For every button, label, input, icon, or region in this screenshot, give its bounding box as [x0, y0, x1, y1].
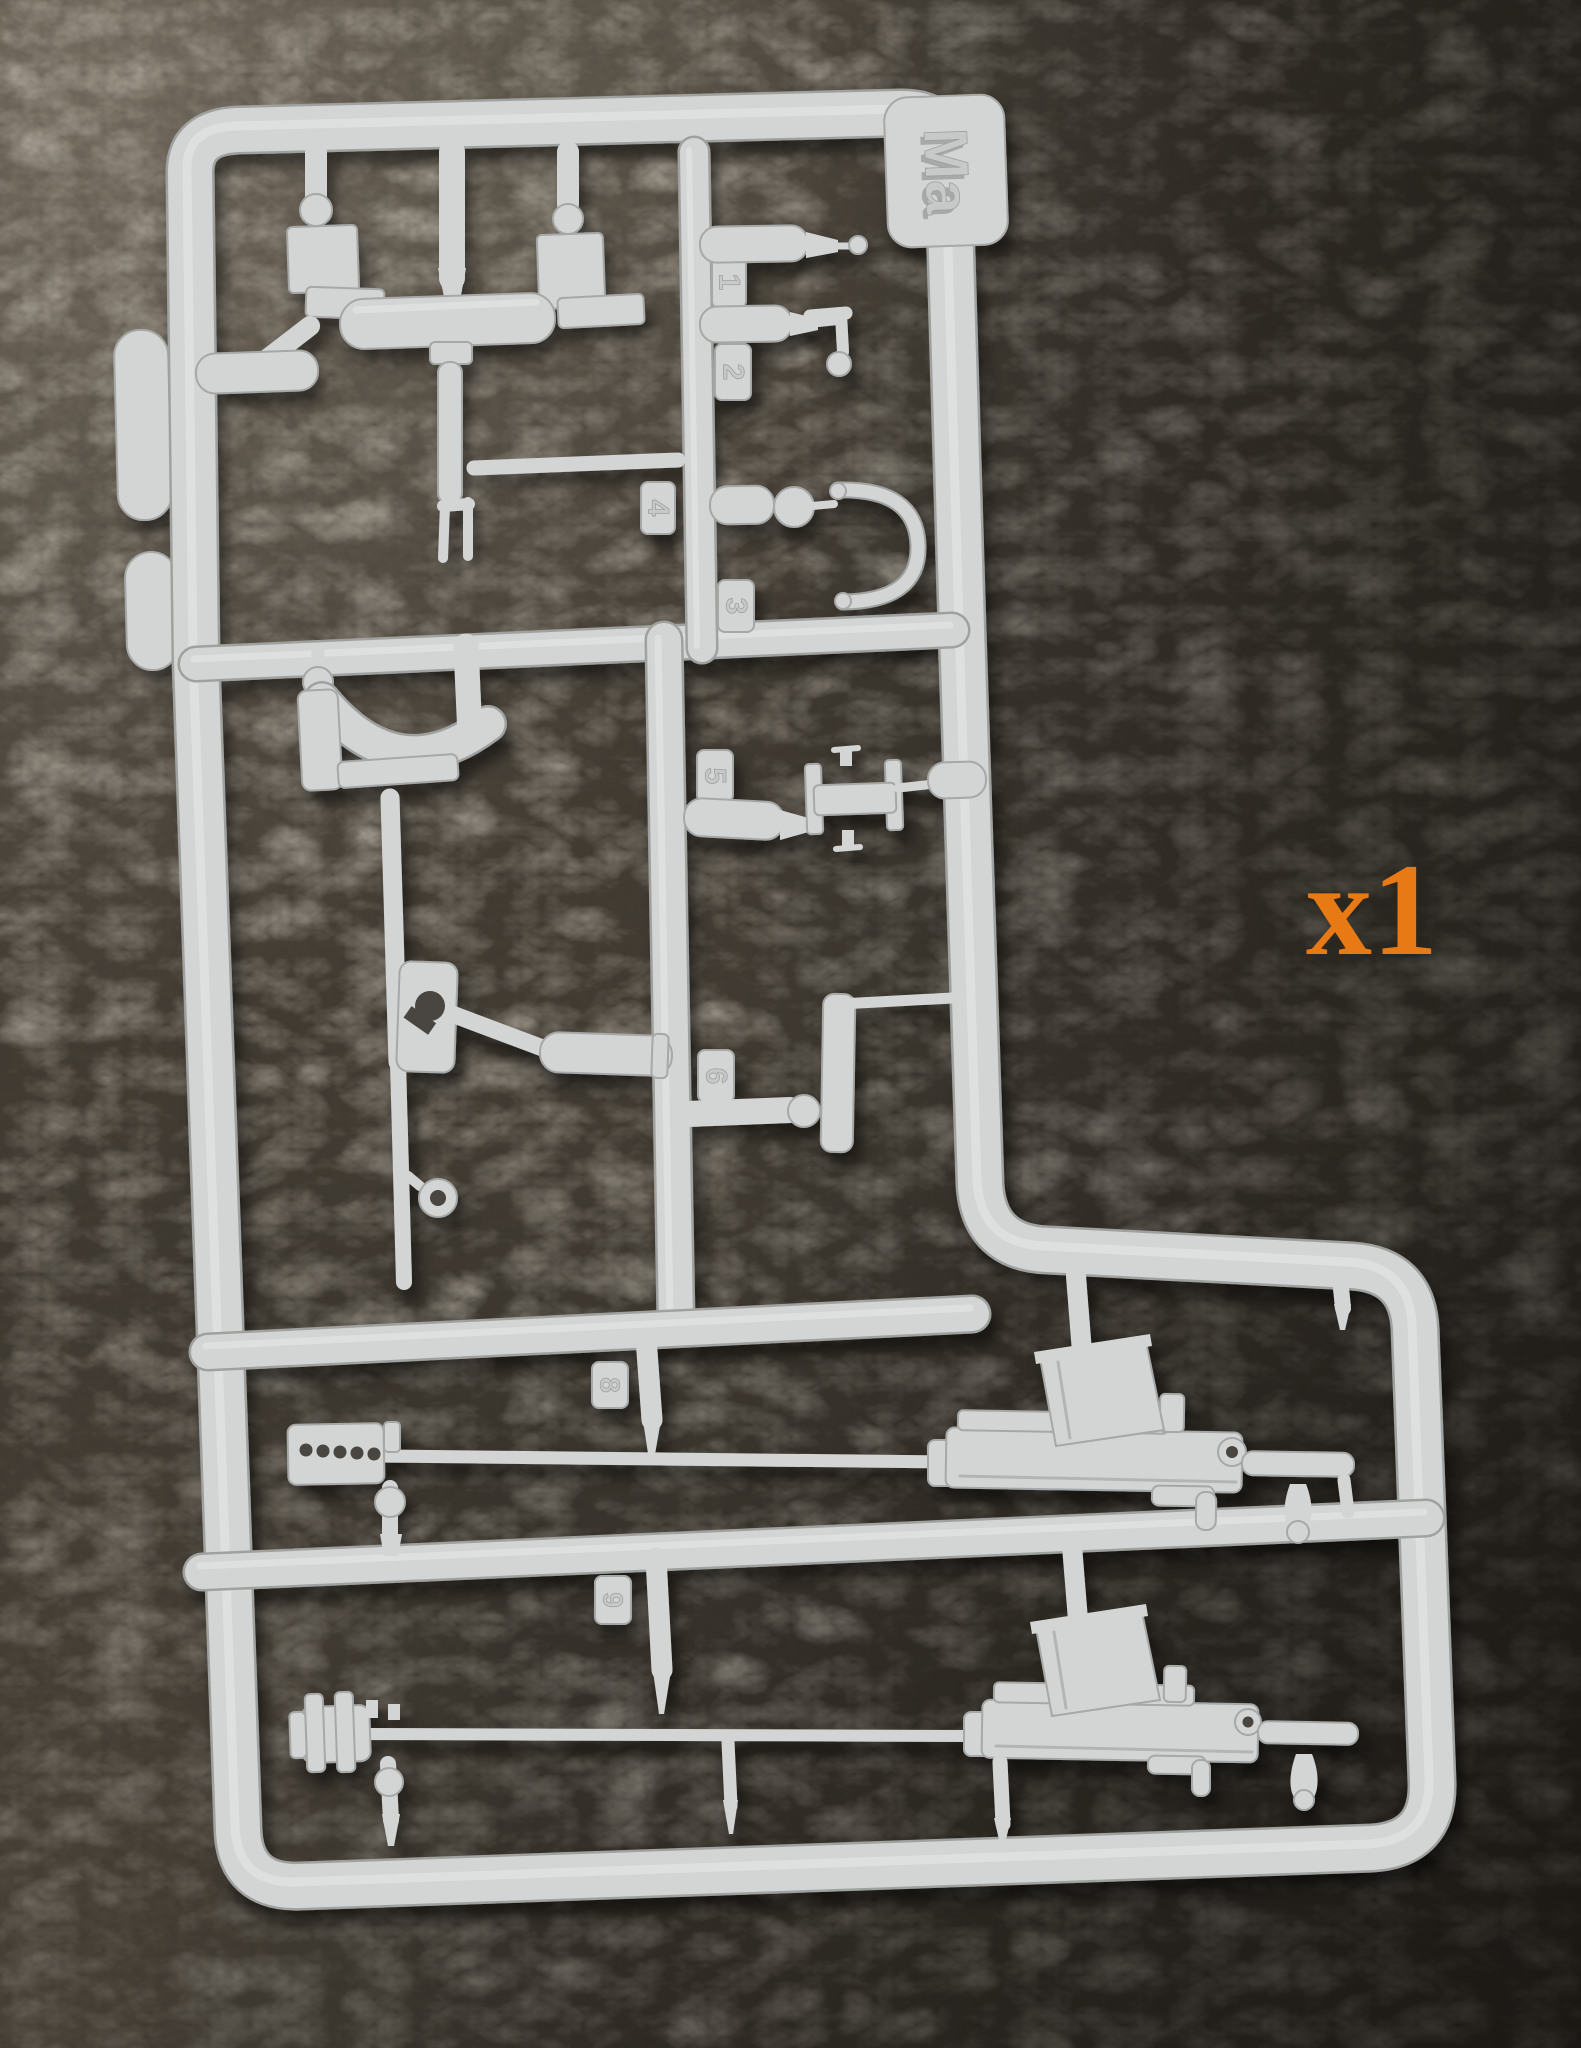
svg-text:9: 9: [598, 1592, 629, 1608]
svg-text:1: 1: [713, 274, 746, 291]
gun2-sight-nub-2: [388, 1704, 400, 1720]
part-tag-3: 3: [718, 580, 754, 632]
svg-text:8: 8: [595, 1377, 626, 1393]
part-tag-4: 4: [641, 482, 675, 534]
svg-text:2: 2: [717, 364, 750, 381]
gun2-sight-nub-1: [366, 1700, 378, 1718]
photo-stage: Ma Ma 1 2 3 4 5: [0, 0, 1581, 2048]
gun2-magazine: [1030, 1604, 1160, 1716]
gate-tag-ma: Ma Ma: [883, 94, 1008, 248]
part-tag-8: 8: [592, 1362, 628, 1408]
part-tag-1: 1: [712, 256, 746, 308]
svg-text:4: 4: [642, 500, 675, 517]
part-tag-6: 6: [698, 1050, 734, 1102]
gate-tag-text: Ma: [910, 127, 982, 216]
part-roller-cylinder: [195, 350, 318, 394]
part-tag-2: 2: [715, 344, 751, 400]
gun-barrel: [380, 1456, 948, 1462]
gun-front-sight: [384, 1422, 400, 1452]
gun2-magazine-stub: [1072, 1546, 1078, 1620]
gun2-barrel: [366, 1734, 982, 1736]
gun-grip: [1284, 1484, 1311, 1543]
gun-muzzle-brake: [287, 1423, 384, 1485]
svg-text:5: 5: [699, 768, 732, 785]
part-tag-9: 9: [595, 1576, 631, 1624]
gun-magazine-stub: [1076, 1276, 1082, 1352]
gun-magazine: [1034, 1334, 1164, 1446]
svg-text:3: 3: [720, 598, 753, 615]
gun2-rear-bar: [1258, 1721, 1358, 1745]
part-tag-5: 5: [697, 750, 733, 802]
svg-text:6: 6: [700, 1068, 733, 1085]
sprue-left-splice-upper: [114, 329, 173, 520]
gun-rear-bar: [1242, 1451, 1354, 1477]
quantity-annotation: x1: [1306, 836, 1438, 983]
gun2-grip: [1290, 1754, 1317, 1810]
sprue-photo: Ma Ma 1 2 3 4 5: [0, 0, 1581, 2048]
